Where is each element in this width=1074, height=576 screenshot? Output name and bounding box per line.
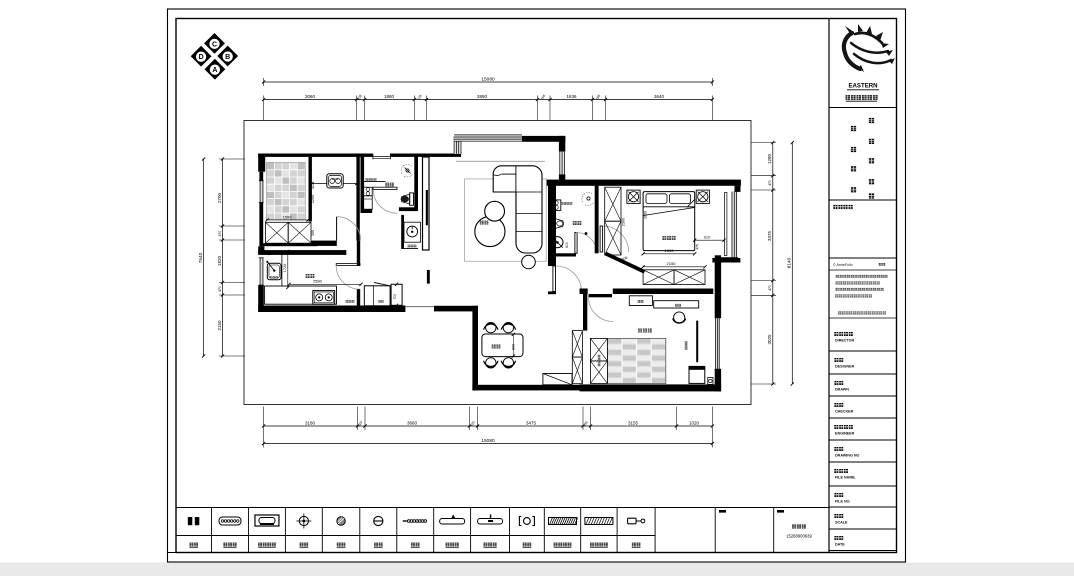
- svg-text:7540: 7540: [198, 252, 204, 263]
- svg-text:DRAWN: DRAWN: [835, 388, 849, 392]
- svg-text:B: B: [225, 54, 230, 61]
- svg-text:475: 475: [696, 244, 700, 250]
- svg-text:2700: 2700: [217, 192, 222, 203]
- svg-text:CHECKER: CHECKER: [835, 410, 854, 414]
- svg-text:470: 470: [218, 231, 222, 237]
- svg-text:470: 470: [768, 180, 772, 186]
- svg-text:1636: 1636: [566, 94, 577, 99]
- svg-text:600: 600: [565, 242, 569, 248]
- svg-text:3180: 3180: [305, 420, 316, 425]
- svg-text:DRAWING NO: DRAWING NO: [835, 454, 860, 458]
- svg-text:2200: 2200: [311, 195, 315, 203]
- svg-text:420: 420: [311, 183, 315, 189]
- svg-text:2580: 2580: [313, 279, 323, 284]
- svg-text:15080: 15080: [481, 438, 495, 444]
- svg-text:3060: 3060: [305, 94, 316, 99]
- svg-text:EASTERN: EASTERN: [848, 83, 877, 90]
- svg-text:300: 300: [311, 230, 315, 236]
- svg-text:470: 470: [218, 286, 222, 292]
- svg-text:8140: 8140: [787, 257, 793, 268]
- svg-text:3025: 3025: [767, 334, 772, 345]
- svg-text:DATE: DATE: [835, 543, 845, 547]
- svg-text:15288900639: 15288900639: [786, 534, 812, 539]
- svg-text:SCALE: SCALE: [835, 521, 848, 525]
- svg-text:3660: 3660: [407, 420, 418, 425]
- svg-text:3155: 3155: [628, 420, 639, 425]
- svg-text:1820: 1820: [217, 255, 222, 266]
- svg-text:FILE NO.: FILE NO.: [835, 500, 851, 504]
- svg-text:© AnneFolio: © AnneFolio: [833, 263, 853, 267]
- svg-text:2300: 2300: [621, 218, 625, 226]
- svg-text:2000: 2000: [644, 211, 648, 219]
- svg-text:610: 610: [704, 236, 710, 240]
- svg-text:2150: 2150: [217, 320, 222, 331]
- svg-text:C: C: [212, 41, 217, 48]
- svg-text:3475: 3475: [526, 420, 537, 425]
- svg-text:A: A: [212, 67, 217, 74]
- svg-text:2150: 2150: [667, 261, 677, 266]
- svg-text:ENGINEER: ENGINEER: [835, 432, 855, 436]
- svg-text:3640: 3640: [654, 94, 665, 99]
- svg-text:3890: 3890: [477, 94, 488, 99]
- svg-text:1280: 1280: [767, 153, 772, 164]
- svg-text:D: D: [199, 54, 204, 61]
- svg-text:FILE NAME.: FILE NAME.: [835, 476, 856, 480]
- svg-text:DESIGNER: DESIGNER: [835, 365, 855, 369]
- svg-text:DIRECTOR: DIRECTOR: [835, 339, 855, 343]
- svg-text:470: 470: [768, 285, 772, 291]
- svg-text:1500: 1500: [332, 177, 339, 181]
- svg-text:15080: 15080: [481, 76, 495, 82]
- svg-text:1500: 1500: [283, 214, 293, 219]
- svg-text:1800: 1800: [665, 248, 675, 253]
- svg-text:1880: 1880: [384, 94, 395, 99]
- svg-text:1720: 1720: [283, 264, 287, 272]
- svg-text:3375: 3375: [767, 230, 772, 241]
- svg-text:700: 700: [393, 294, 397, 300]
- svg-text:1020: 1020: [689, 420, 700, 425]
